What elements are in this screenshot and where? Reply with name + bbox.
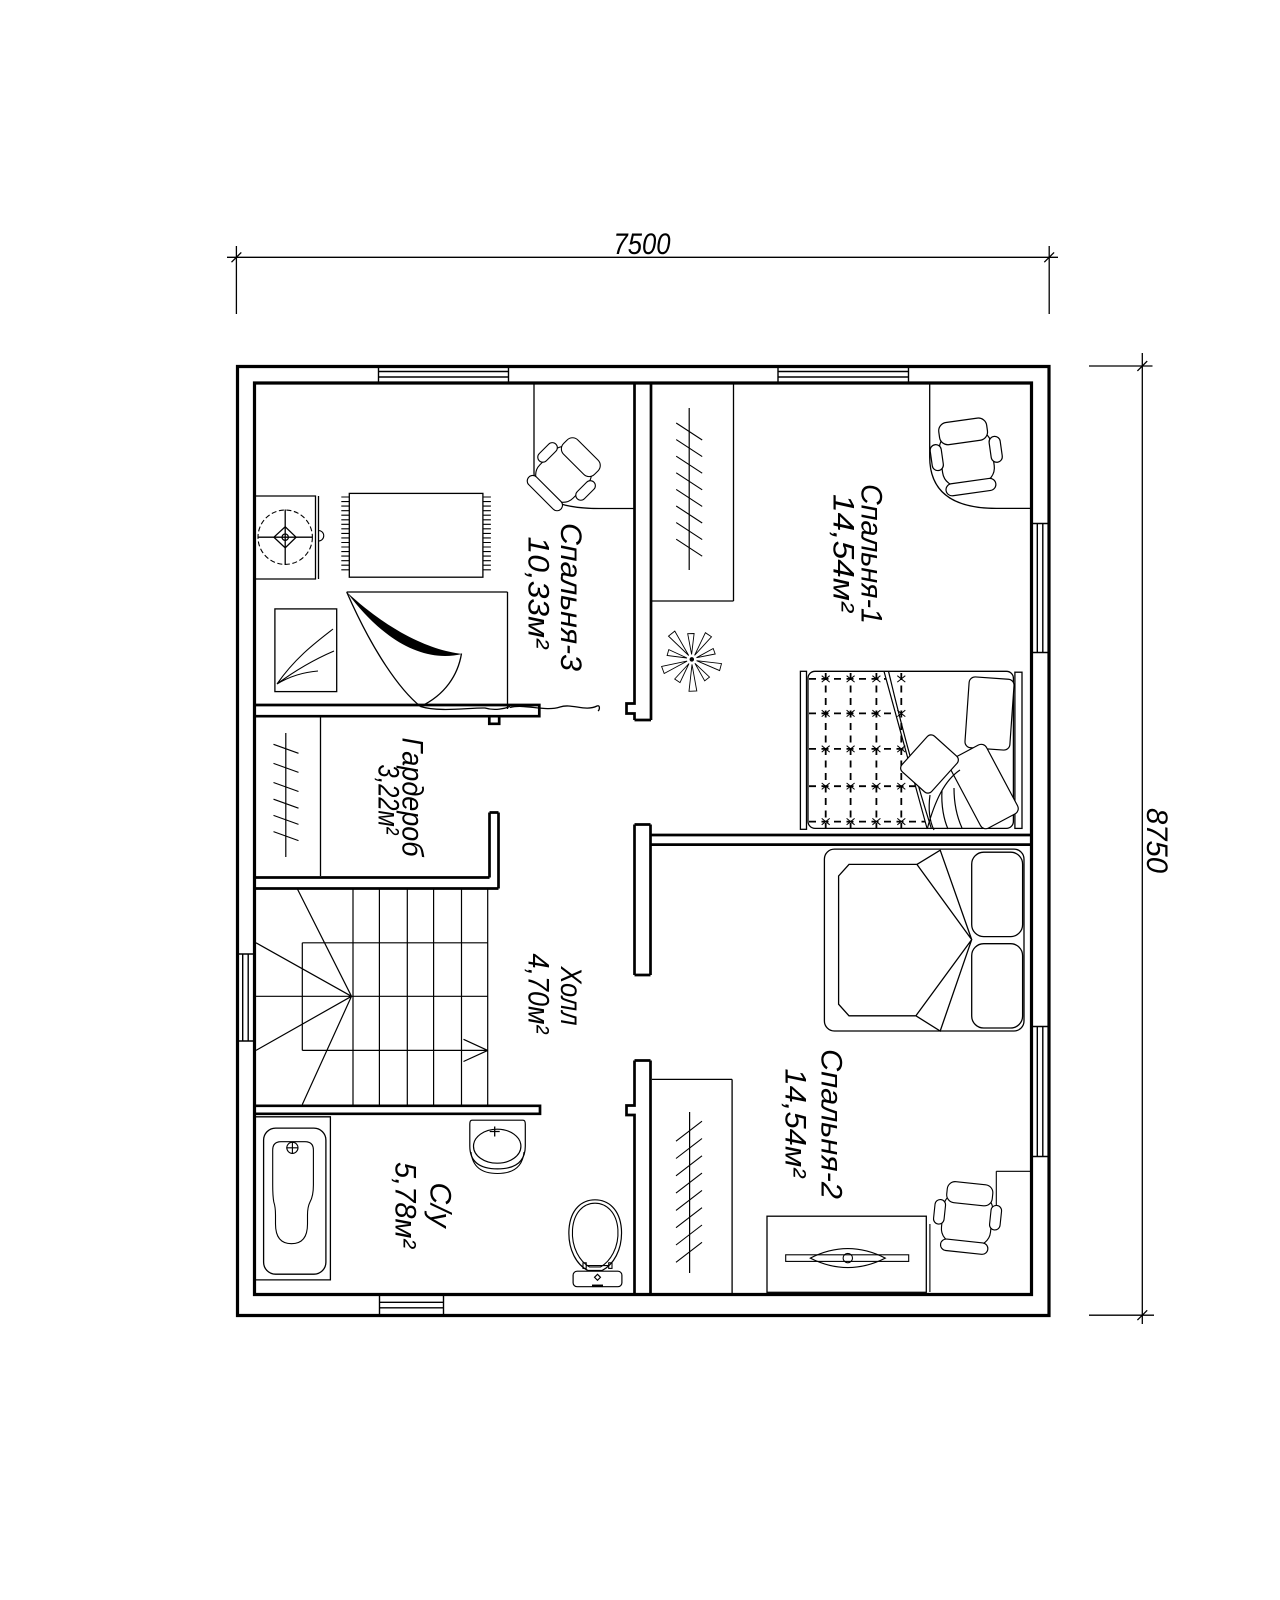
svg-text:Спальня-2: Спальня-2: [815, 1049, 848, 1199]
svg-text:14,54м²: 14,54м²: [827, 494, 860, 613]
svg-text:5,78м²: 5,78м²: [389, 1162, 422, 1249]
svg-text:С/у: С/у: [424, 1183, 457, 1230]
svg-text:Спальня-3: Спальня-3: [554, 523, 587, 671]
svg-text:4,70м²: 4,70м²: [522, 954, 555, 1035]
svg-text:3,22м²: 3,22м²: [372, 765, 405, 836]
svg-text:Холл: Холл: [554, 966, 587, 1026]
svg-text:10,33м²: 10,33м²: [522, 537, 555, 650]
svg-text:14,54м²: 14,54м²: [779, 1069, 812, 1179]
svg-text:7500: 7500: [614, 228, 671, 261]
svg-text:8750: 8750: [1140, 808, 1173, 873]
